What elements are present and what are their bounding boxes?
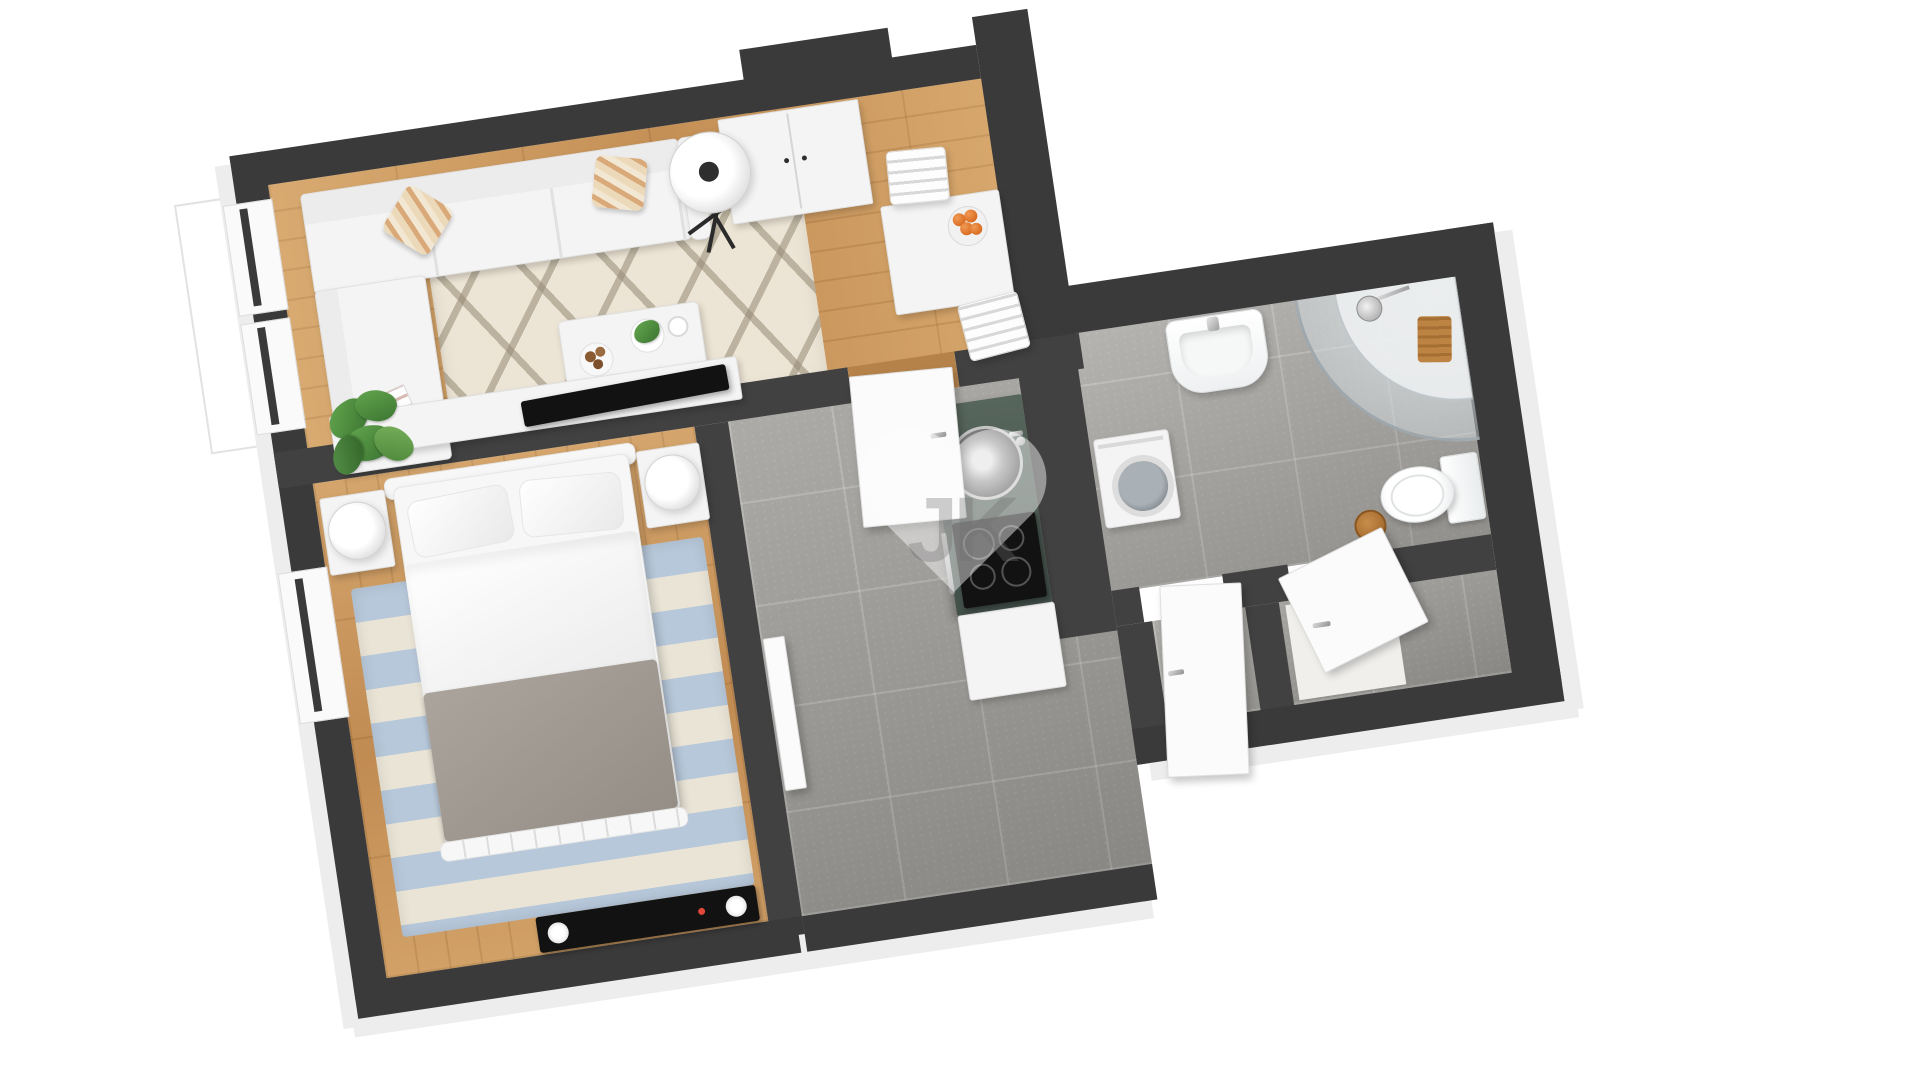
cooktop: [952, 511, 1048, 608]
sofa-pillow: [591, 155, 648, 212]
shower-duckboard: [1417, 316, 1451, 362]
kitchen-base-cabinet: [957, 601, 1067, 701]
storage-door-left: [1159, 582, 1249, 777]
entry-door: [849, 367, 967, 528]
apartment-plan: [229, 0, 1584, 1019]
monstera-plant: [318, 382, 427, 487]
floor-plan-render: JK: [0, 0, 1920, 1080]
wall-bath-bottom-a: [1111, 587, 1144, 627]
bed-pillow: [518, 471, 625, 539]
dining-chair: [885, 146, 950, 206]
bathroom-faucet: [1206, 316, 1220, 332]
